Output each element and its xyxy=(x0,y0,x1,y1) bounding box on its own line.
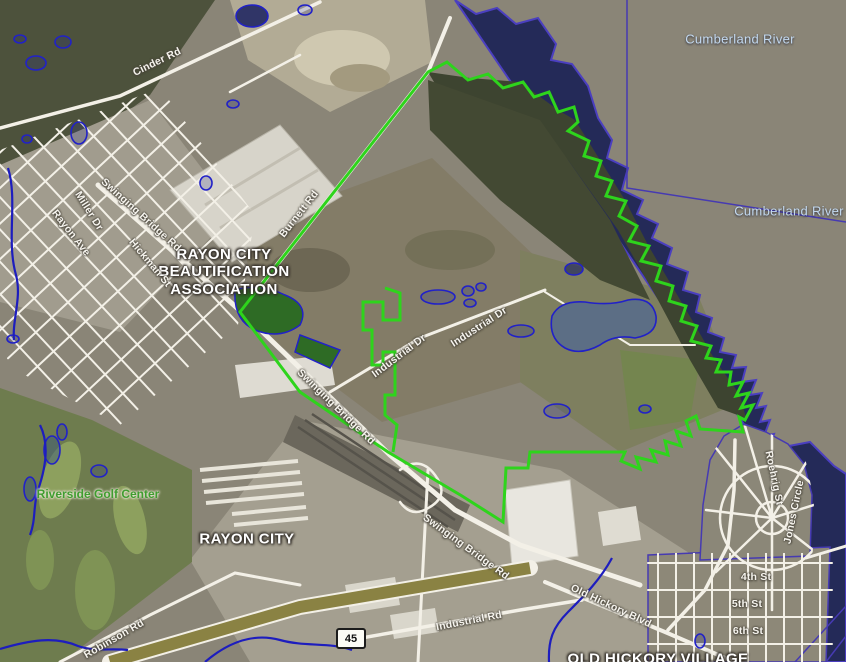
map-canvas[interactable]: Cumberland RiverCumberland RiverRAYON CI… xyxy=(0,0,846,662)
route-45-shield: 45 xyxy=(336,628,366,649)
map-imagery xyxy=(0,0,846,662)
route-number: 45 xyxy=(345,633,357,645)
